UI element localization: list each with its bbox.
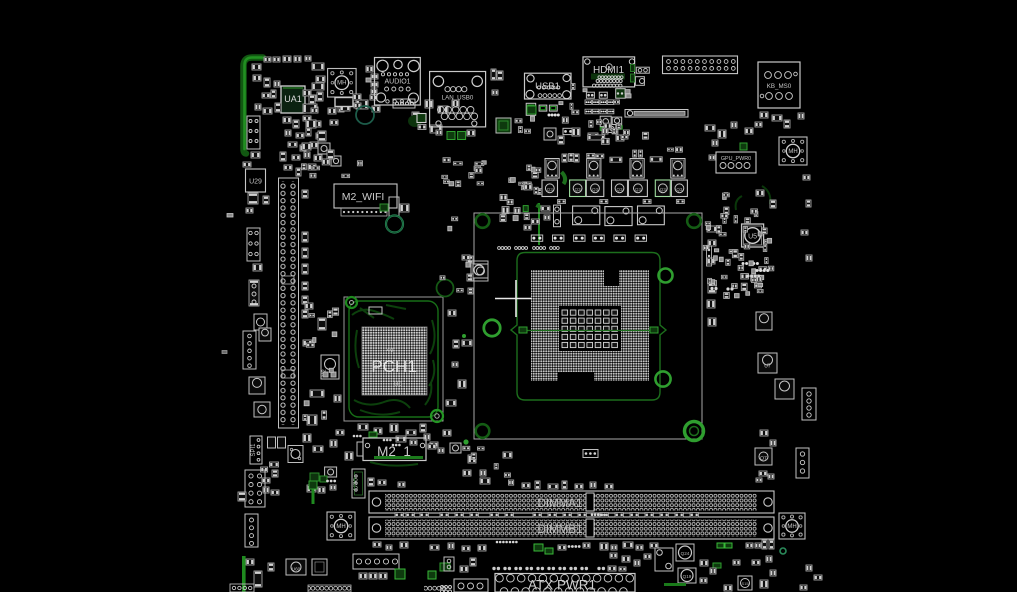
svg-text:U5: U5 [748, 234, 757, 241]
svg-text:M2_WIFI: M2_WIFI [342, 191, 385, 203]
svg-text:Q3: Q3 [575, 187, 582, 192]
svg-text:GPU_PWR0: GPU_PWR0 [721, 156, 751, 162]
svg-text:MH: MH [788, 149, 797, 155]
svg-text:Q3: Q3 [616, 187, 623, 192]
svg-text:U29: U29 [249, 179, 262, 186]
svg-text:AUDIO1: AUDIO1 [384, 79, 410, 86]
svg-text:Q7: Q7 [760, 456, 767, 462]
svg-text:Q3: Q3 [676, 187, 683, 192]
svg-text:SPI1: SPI1 [251, 443, 257, 457]
svg-text:40: 40 [387, 348, 394, 354]
svg-text:U0: U0 [394, 382, 402, 388]
svg-text:MH: MH [787, 524, 796, 530]
svg-text:Q19: Q19 [683, 574, 692, 579]
svg-text:Q3: Q3 [547, 187, 554, 192]
svg-text:Q3: Q3 [660, 187, 667, 192]
svg-text:PCH1: PCH1 [371, 357, 416, 376]
svg-text:Q24: Q24 [681, 551, 690, 556]
svg-text:MH: MH [337, 81, 346, 87]
svg-text:U7: U7 [764, 363, 771, 369]
svg-text:ATX PWR1: ATX PWR1 [528, 578, 596, 592]
svg-text:LAN_USB0: LAN_USB0 [442, 95, 474, 102]
svg-text:Q3: Q3 [635, 187, 642, 192]
svg-text:U60: U60 [292, 567, 301, 572]
svg-text:DIMMA1: DIMMA1 [538, 498, 583, 510]
svg-text:MH: MH [336, 524, 345, 530]
svg-text:UA1: UA1 [284, 94, 302, 104]
svg-text:S15: S15 [741, 581, 749, 586]
svg-text:Q3: Q3 [592, 187, 599, 192]
svg-text:KB_MS0: KB_MS0 [767, 83, 792, 90]
svg-text:DIMMB1: DIMMB1 [538, 524, 583, 536]
